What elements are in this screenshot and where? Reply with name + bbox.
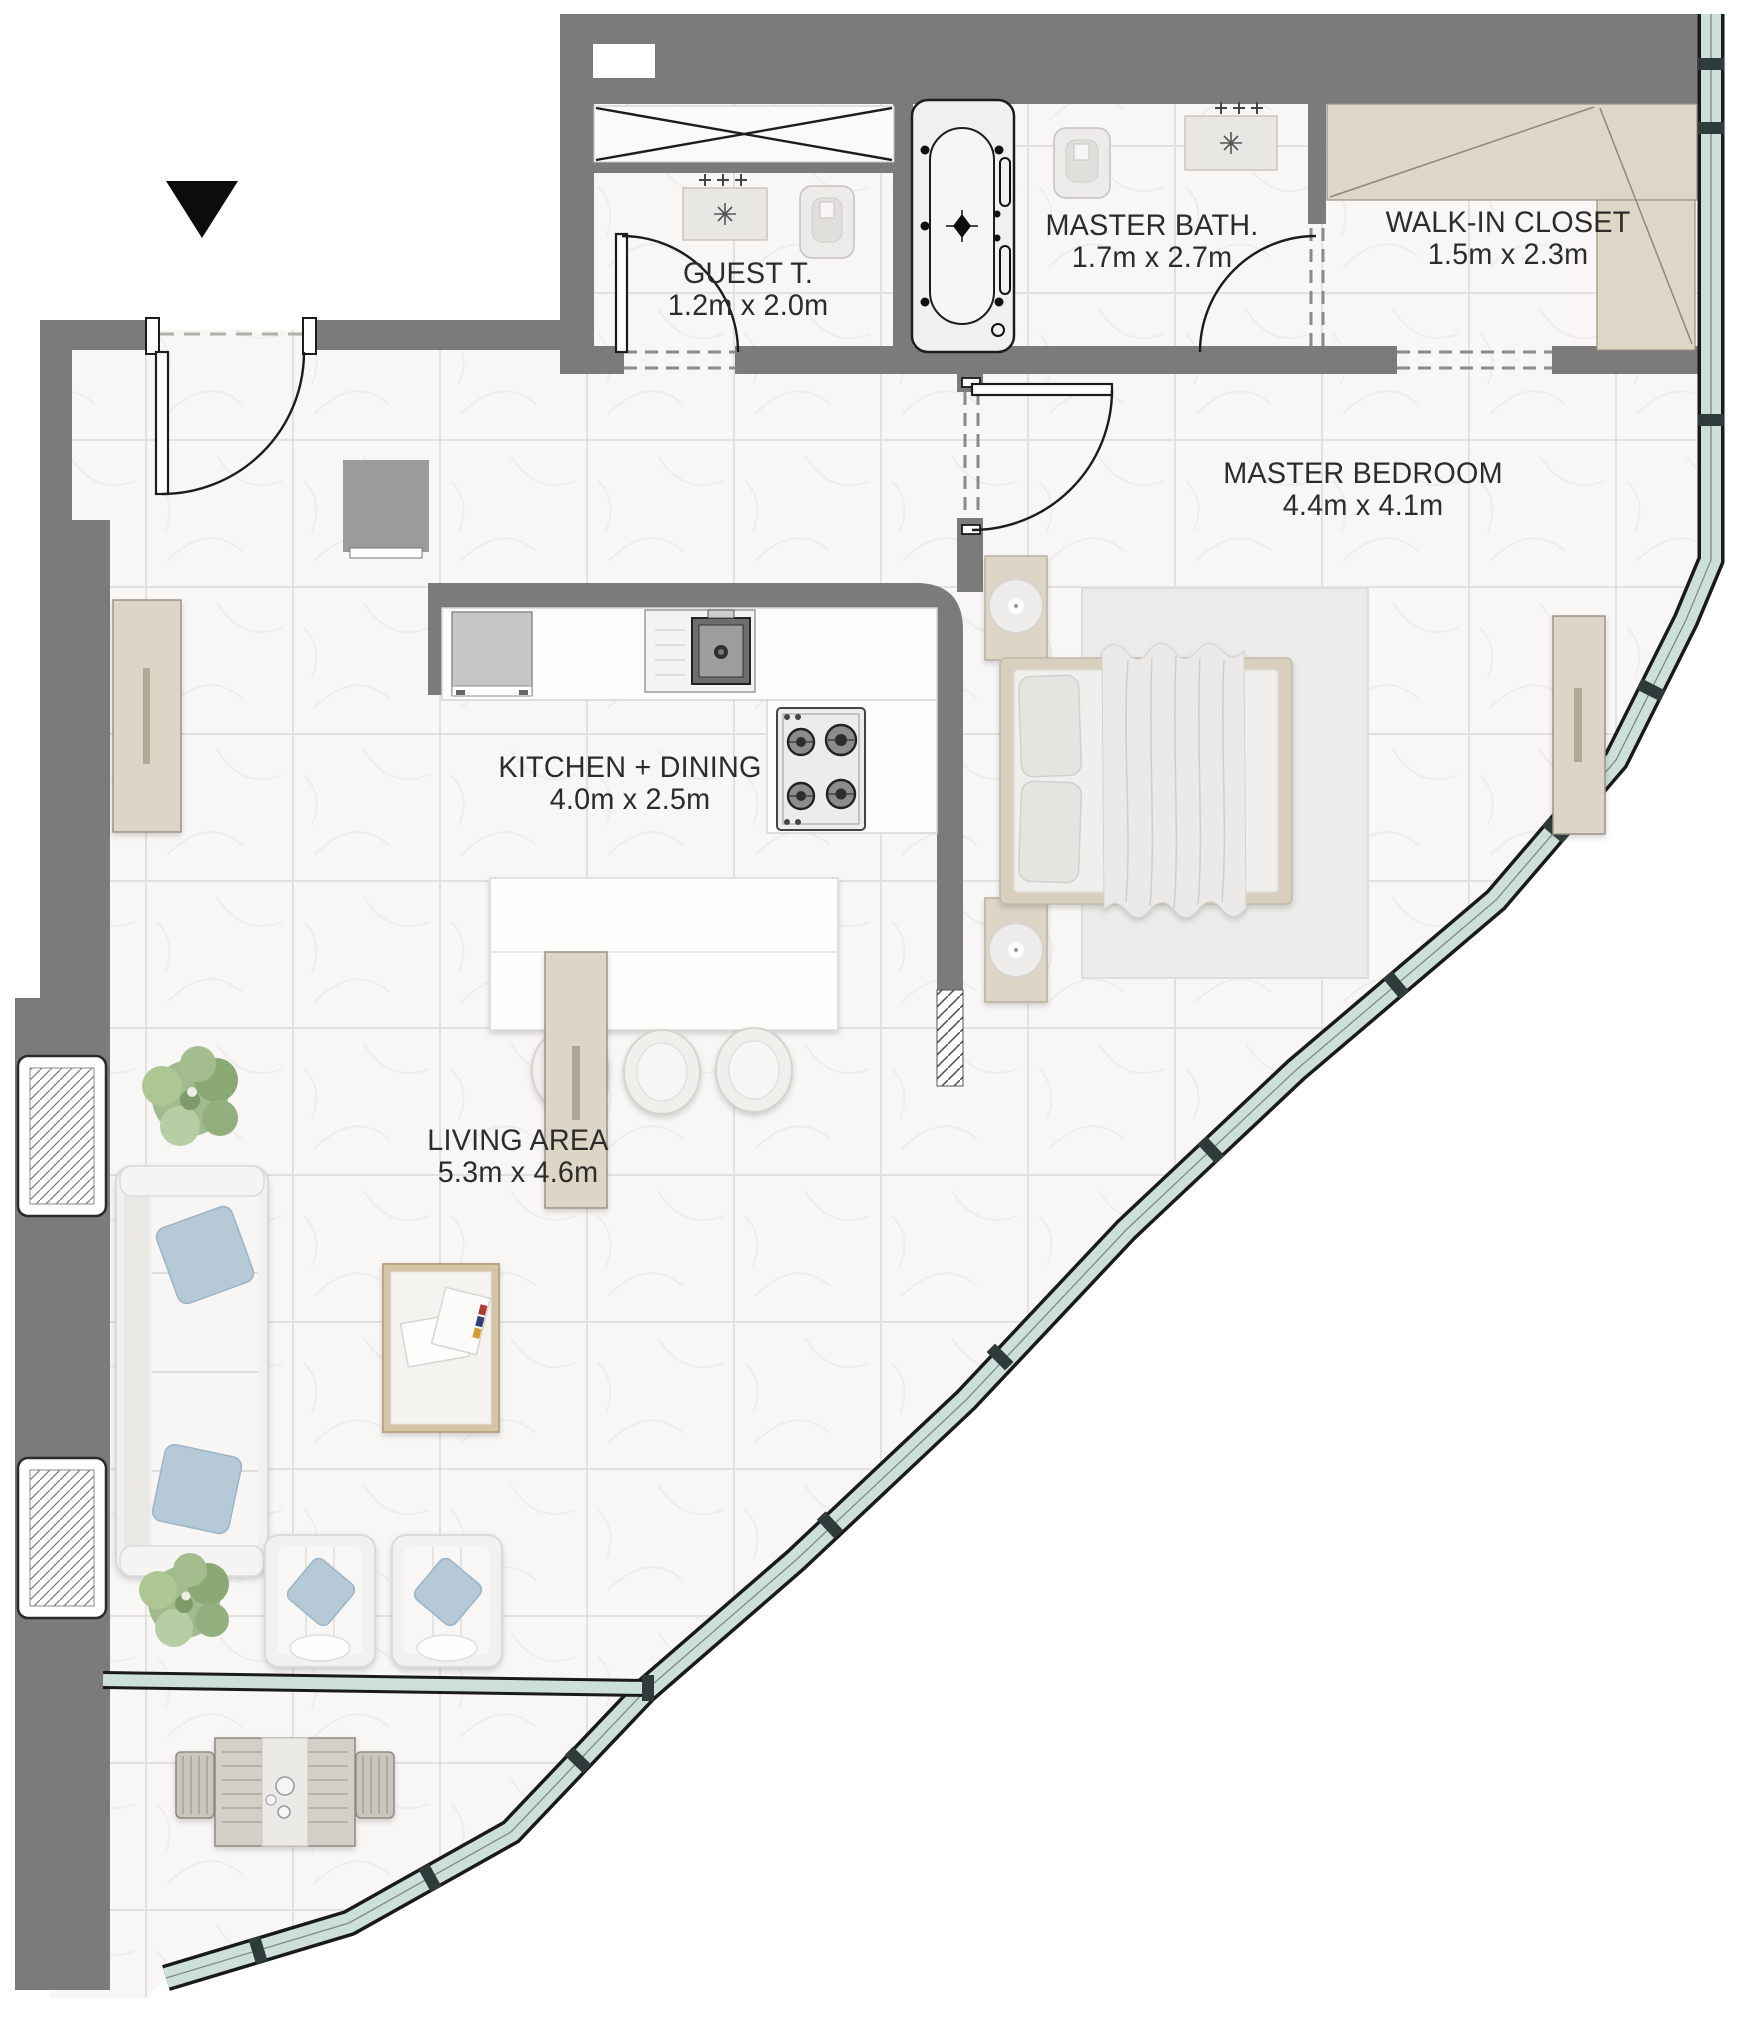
wall-left-upper bbox=[40, 320, 72, 522]
floor-plan: GUEST T. 1.2m x 2.0m MASTER BATH. 1.7m x… bbox=[0, 0, 1752, 2028]
room-dims: 5.3m x 4.6m bbox=[355, 1157, 681, 1189]
room-name: MASTER BATH. bbox=[989, 210, 1315, 242]
tall-cabinet-front bbox=[350, 548, 422, 558]
room-name: GUEST T. bbox=[585, 258, 911, 290]
nightstand-top bbox=[985, 556, 1047, 660]
room-label-kitchen-dining: KITCHEN + DINING 4.0m x 2.5m bbox=[467, 752, 793, 816]
wall-top-band bbox=[560, 14, 1706, 104]
wall-kitchen-stub bbox=[428, 583, 442, 695]
room-dims: 1.5m x 2.3m bbox=[1345, 239, 1671, 271]
island bbox=[490, 878, 838, 1030]
coffee-table bbox=[383, 1264, 499, 1432]
bed bbox=[1000, 643, 1292, 917]
room-dims: 1.2m x 2.0m bbox=[585, 290, 911, 322]
wall-service-notch bbox=[593, 44, 655, 78]
room-label-master-bath: MASTER BATH. 1.7m x 2.7m bbox=[989, 210, 1315, 274]
left-console bbox=[113, 600, 181, 832]
bedroom-dresser bbox=[1553, 616, 1605, 834]
room-label-master-bedroom: MASTER BEDROOM 4.4m x 4.1m bbox=[1200, 458, 1526, 522]
room-name: MASTER BEDROOM bbox=[1200, 458, 1526, 490]
fridge bbox=[452, 612, 532, 696]
tall-cabinet bbox=[343, 460, 429, 552]
room-label-guest-toilet: GUEST T. 1.2m x 2.0m bbox=[585, 258, 911, 322]
room-label-walk-in-closet: WALK-IN CLOSET 1.5m x 2.3m bbox=[1345, 207, 1671, 271]
wall-left-mid bbox=[40, 520, 110, 1000]
armchair-2 bbox=[392, 1535, 502, 1667]
hall-closet-x bbox=[594, 106, 894, 162]
sofa bbox=[116, 1166, 268, 1576]
kitchen-sink bbox=[645, 610, 755, 692]
room-name: LIVING AREA bbox=[355, 1125, 681, 1157]
guest-toilet-wc bbox=[800, 186, 854, 258]
wall-bath-bottom bbox=[985, 346, 1397, 374]
room-name: WALK-IN CLOSET bbox=[1345, 207, 1671, 239]
outdoor-chair-right bbox=[356, 1752, 394, 1818]
room-dims: 1.7m x 2.7m bbox=[989, 242, 1315, 274]
entry-marker-icon bbox=[166, 181, 238, 238]
room-label-living-area: LIVING AREA 5.3m x 4.6m bbox=[355, 1125, 681, 1189]
room-dims: 4.0m x 2.5m bbox=[467, 784, 793, 816]
master-toilet-wc bbox=[1054, 128, 1110, 198]
room-name: KITCHEN + DINING bbox=[467, 752, 793, 784]
window-2 bbox=[18, 1458, 106, 1618]
wall-entry-right bbox=[312, 320, 562, 350]
balcony-divider-glass bbox=[103, 1680, 648, 1688]
wall-hatch-lines bbox=[937, 990, 963, 1086]
window-1 bbox=[18, 1056, 106, 1216]
wall-bath-closet-divider bbox=[1308, 104, 1326, 224]
outdoor-chair-left bbox=[176, 1752, 214, 1818]
nightstand-bottom bbox=[985, 898, 1047, 1002]
room-dims: 4.4m x 4.1m bbox=[1200, 490, 1526, 522]
armchair-1 bbox=[265, 1535, 375, 1667]
wall-guestT-bottom-left bbox=[560, 346, 624, 374]
